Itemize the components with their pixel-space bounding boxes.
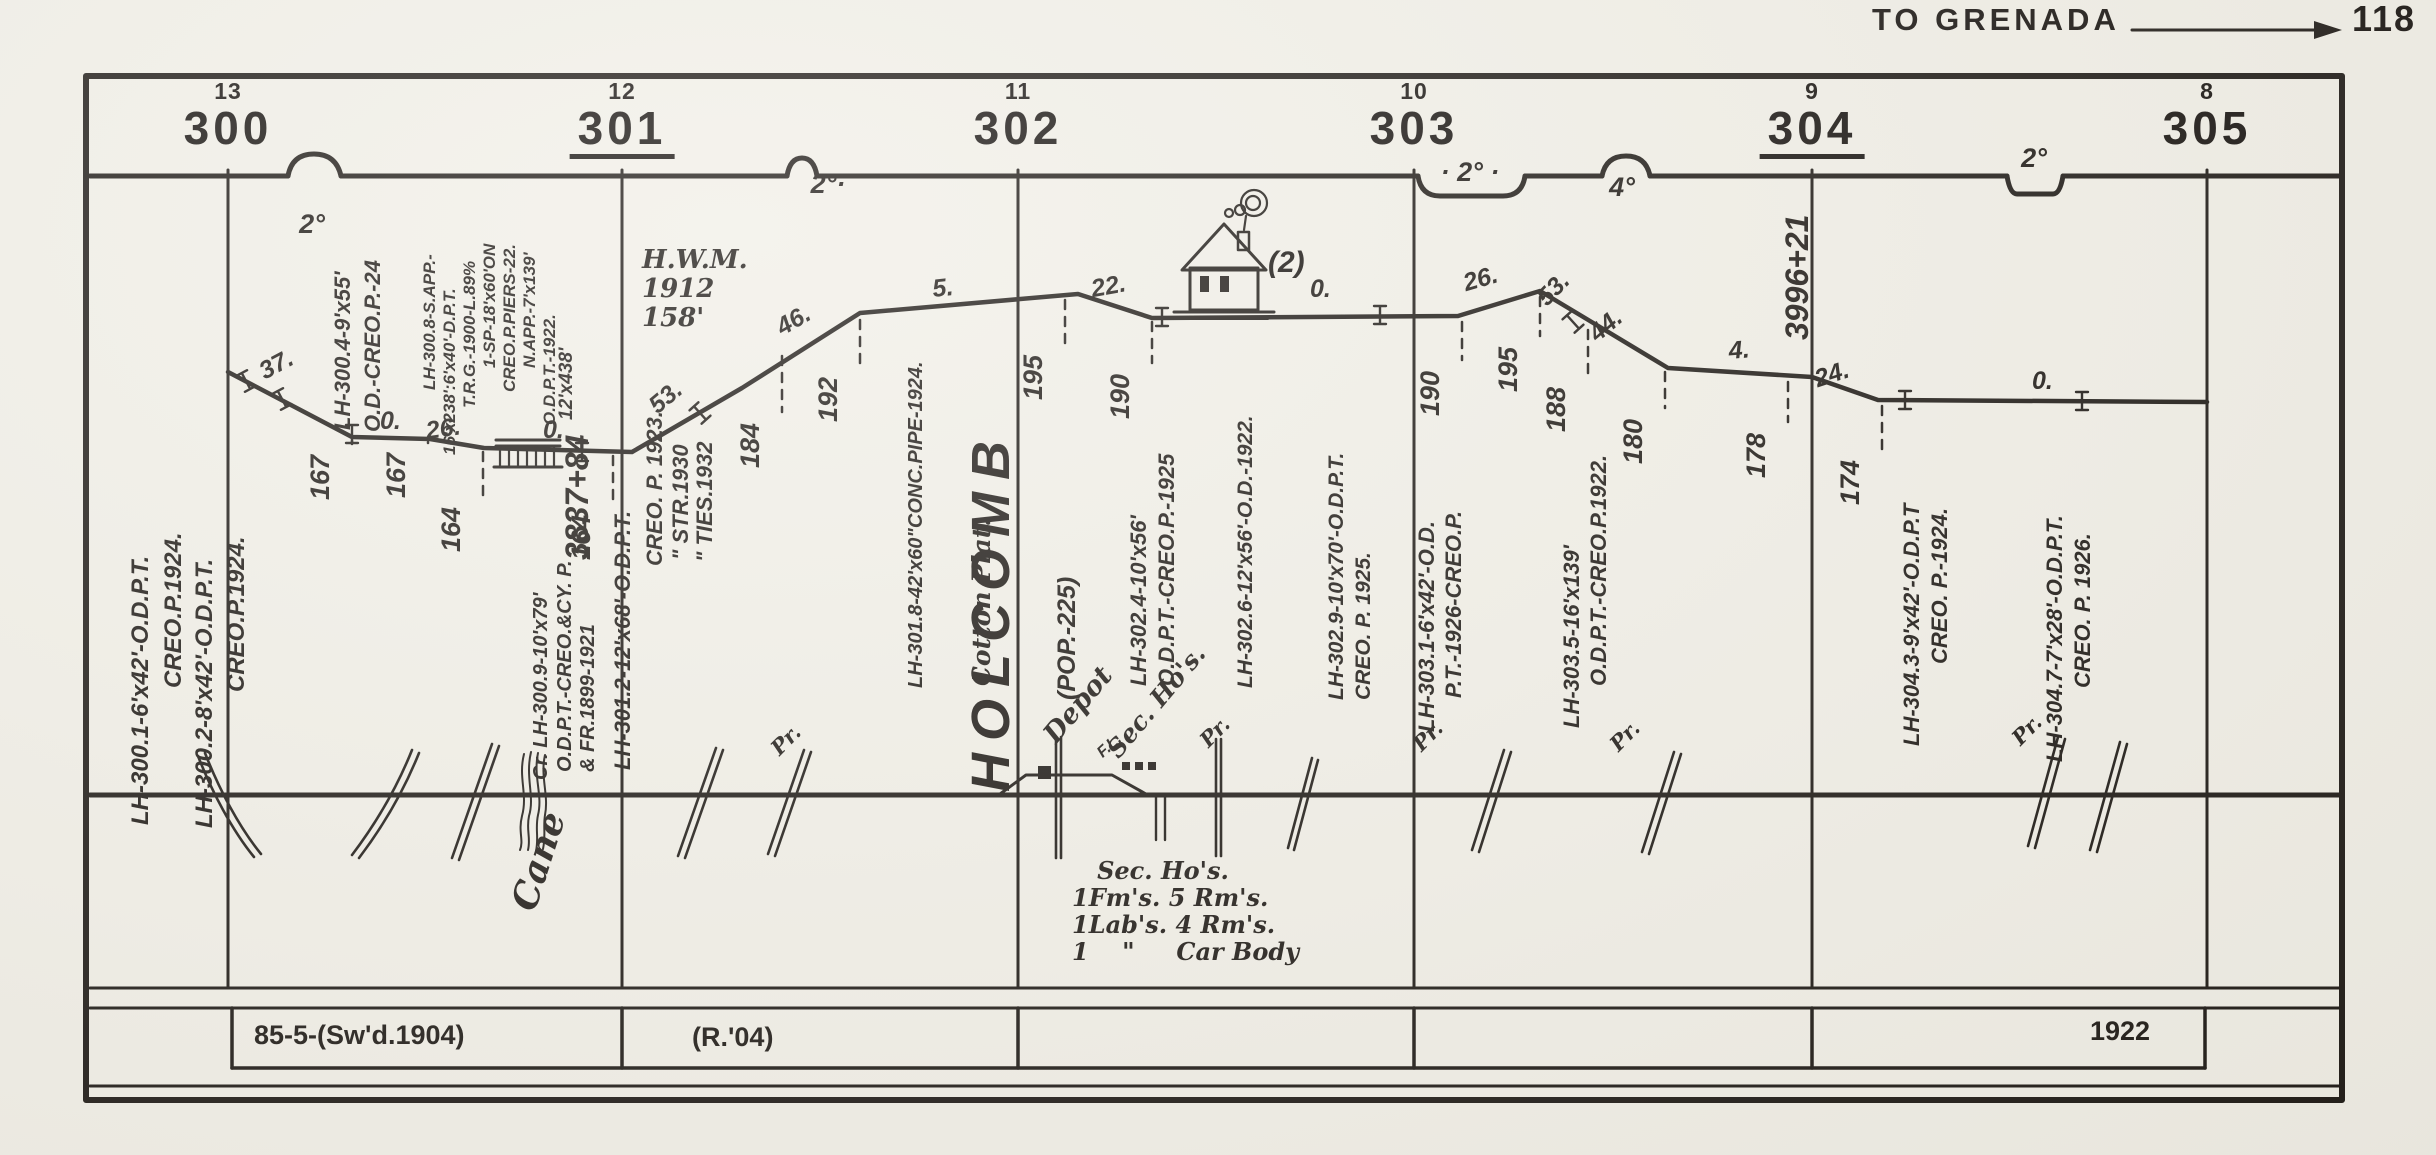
- grenada-arrow: [2132, 21, 2342, 39]
- grade-label: 4.: [1727, 334, 1750, 366]
- road-crossings: [198, 737, 2127, 860]
- note-line: H.W.M.: [642, 246, 748, 275]
- rotated-annotation: LH-304.3-9'x42'-O.D.P.T: [1899, 504, 1925, 746]
- rotated-annotation: 3996+21: [1778, 215, 1816, 340]
- curve-bump: [2007, 176, 2063, 194]
- alignment-line: [90, 154, 2340, 196]
- rotated-annotation: O.D.P.T.-CREO.P.-1925: [1154, 454, 1180, 686]
- milepost-station-number: 13: [184, 78, 273, 105]
- note-line: 1 " Car Body: [1072, 939, 1299, 966]
- elevation-label: 195: [1017, 355, 1049, 400]
- curve-degree-label: 2°: [2021, 142, 2047, 174]
- rotated-annotation: P.T.-1926-CREO.P.: [1441, 511, 1467, 698]
- milepost-station-number: 11: [974, 78, 1063, 105]
- note-line: 1Lab's. 4 Rm's.: [1072, 912, 1299, 939]
- milepost-303: 10303: [1370, 78, 1459, 152]
- grade-label: 5.: [931, 272, 955, 304]
- note-line: Sec. Ho's.: [1072, 858, 1299, 885]
- house-icon: [1174, 190, 1274, 319]
- note-line: 1912: [642, 275, 748, 304]
- rotated-annotation: LH-304.7-7'x28'-O.D.P.T.: [2042, 515, 2068, 762]
- title-band-label: 85-5-(Sw'd.1904): [254, 1020, 465, 1051]
- rotated-annotation: LH-303.1-6'x42'-O.D.: [1414, 521, 1440, 732]
- curve-degree-label: · 2° ·: [1441, 156, 1500, 188]
- elevation-label: 188: [1540, 387, 1572, 432]
- elevation-label: 180: [1617, 419, 1649, 464]
- milepost-305: 8305: [2163, 78, 2252, 152]
- curve-degree-label: 4°: [1609, 171, 1635, 203]
- rotated-annotation: Cr. LH-300.9-10'x79': [529, 593, 553, 780]
- title-band: [232, 1008, 2205, 1068]
- rotated-annotation: CREO. P. 1925.: [1351, 552, 1376, 700]
- milepost-number: 305: [2163, 105, 2252, 152]
- elevation-label: 164: [435, 507, 467, 552]
- milepost-number: 303: [1370, 105, 1459, 152]
- rotated-annotation: LH-300.4-9'x55': [330, 272, 356, 430]
- smoke-icon: [1225, 190, 1267, 230]
- rotated-annotation: CREO.P.1924.: [222, 536, 251, 692]
- rotated-annotation: LH-300.1-6'x42'-O.D.P.T.: [126, 556, 155, 825]
- rotated-annotation: HOLCOMB: [959, 429, 1024, 792]
- rotated-annotation: LH-301.8-42'x60"CONC.PIPE-1924.: [904, 361, 928, 688]
- rotated-annotation: LH-302.4-10'x56': [1126, 515, 1152, 686]
- milepost-302: 11302: [974, 78, 1063, 152]
- elevation-label: 178: [1740, 433, 1772, 478]
- curve-degree-label: 2°: [299, 208, 325, 240]
- rotated-annotation: CREO. P. 1923.: [642, 411, 668, 566]
- curve-degree-label: 2°·: [811, 168, 846, 200]
- rotated-annotation: O.D.P.T.-CREO.&CY. P.: [553, 560, 577, 772]
- track-chart-page: TO GRENADA 118 (2): [0, 0, 2436, 1155]
- rotated-annotation: LH-300.2-8'x42'-O.D.P.T.: [190, 559, 219, 828]
- depot-siding: [1000, 762, 1165, 840]
- grade-label: 0.: [2032, 366, 2053, 396]
- milepost-station-number: 10: [1370, 78, 1459, 105]
- rotated-annotation: LH-301.2-12'x68'-O.D.P.T.: [610, 511, 636, 770]
- rotated-annotation: CREO. P. 1926.: [2070, 533, 2096, 688]
- note-line: 158': [642, 304, 748, 333]
- rotated-annotation: N.APP.-7'x139': [520, 252, 540, 368]
- note-block: Sec. Ho's.1Fm's. 5 Rm's.1Lab's. 4 Rm's.1…: [1072, 858, 1299, 966]
- note-block: H.W.M.1912158': [642, 246, 748, 333]
- grade-label: 0.: [1310, 274, 1331, 304]
- rotated-annotation: CREO.P.1924.: [159, 532, 188, 688]
- elevation-label: 195: [1492, 347, 1524, 392]
- rotated-annotation: 1-SP-18'x60'ON: [480, 244, 500, 368]
- title-band-label: 1922: [2090, 1016, 2150, 1047]
- rotated-annotation: LH-302.9-10'x70'-O.D.P.T.: [1324, 453, 1349, 700]
- rotated-annotation: " STR.1930: [668, 444, 694, 560]
- title-band-label: (R.'04): [692, 1022, 773, 1053]
- milepost-station-number: 8: [2163, 78, 2252, 105]
- culvert-mark: [690, 402, 711, 423]
- rotated-annotation: 3837+84: [558, 435, 596, 560]
- milepost-300: 13300: [184, 78, 273, 152]
- milepost-number: 302: [974, 105, 1063, 152]
- rotated-annotation: 12'x438': [555, 348, 578, 420]
- building-dot: [1148, 762, 1156, 770]
- milepost-304: 9304: [1760, 78, 1865, 159]
- elevation-label: 167: [304, 455, 336, 500]
- rotated-annotation: T.R.G.-1900-L.89%: [460, 261, 480, 408]
- rotated-annotation: " TIES.1932: [692, 442, 718, 563]
- rotated-annotation: O.D.-CREO.P.-24: [360, 260, 386, 432]
- rotated-annotation: & FR.1899-1921: [576, 624, 600, 772]
- milepost-301: 12301: [570, 78, 675, 159]
- rotated-annotation: CREO. P.-1924.: [1927, 508, 1953, 664]
- elevation-label: 192: [812, 377, 844, 422]
- rotated-annotation: LH-302.6-12'x56'-O.D.-1922.: [1233, 415, 1258, 688]
- curve-bump: [288, 154, 341, 176]
- elevation-label: 190: [1414, 371, 1446, 416]
- grade-label: 22.: [1089, 268, 1128, 304]
- rotated-annotation: 16'x238':6'x40'-D.P.T.: [440, 288, 460, 455]
- culvert-mark: [236, 370, 255, 392]
- rotated-annotation: CREO.P.PIERS-22.: [500, 244, 520, 392]
- note-line: 1Fm's. 5 Rm's.: [1072, 885, 1299, 912]
- rotated-annotation: LH-303.5-16'x139': [1559, 545, 1585, 728]
- elevation-label: 184: [734, 423, 766, 468]
- milepost-station-number: 12: [570, 78, 675, 105]
- rotated-annotation: LH-300.8-S.APP.-: [420, 254, 440, 390]
- depot-building: [1038, 766, 1051, 779]
- milepost-number: 304: [1760, 105, 1865, 159]
- elevation-label: 190: [1104, 374, 1136, 419]
- milepost-number: 300: [184, 105, 273, 152]
- rotated-annotation: O.D.P.T.-CREO.P.1922.: [1586, 455, 1612, 686]
- elevation-label: 174: [1834, 460, 1866, 505]
- milepost-number: 301: [570, 105, 675, 159]
- building-dot: [1135, 762, 1143, 770]
- milepost-station-number: 9: [1760, 78, 1865, 105]
- elevation-label: 167: [380, 453, 412, 498]
